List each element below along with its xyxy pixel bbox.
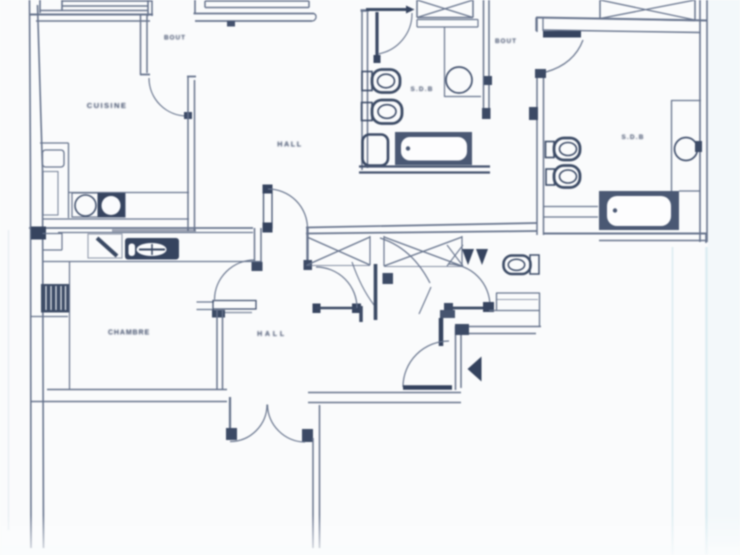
svg-text:S.D.B: S.D.B bbox=[410, 86, 433, 93]
svg-text:CUISINE: CUISINE bbox=[87, 101, 128, 110]
svg-text:HALL: HALL bbox=[277, 140, 303, 149]
svg-text:BOUT: BOUT bbox=[164, 35, 186, 42]
svg-text:S.D.B: S.D.B bbox=[621, 134, 644, 141]
svg-text:HALL: HALL bbox=[257, 331, 287, 338]
svg-text:BOUT: BOUT bbox=[495, 38, 517, 45]
svg-text:CHAMBRE: CHAMBRE bbox=[108, 330, 150, 337]
